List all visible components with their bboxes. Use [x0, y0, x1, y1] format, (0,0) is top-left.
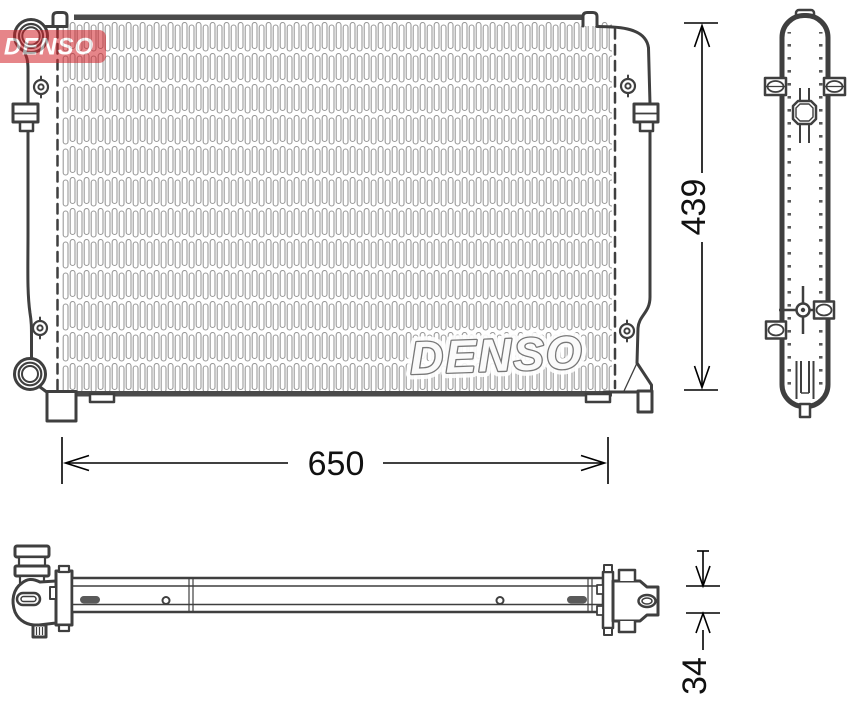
side-knob-left-mid — [766, 322, 786, 339]
side-tick-strip-left — [788, 32, 792, 388]
side-bottom-tab — [800, 404, 810, 417]
core-watermark-text: DENSO — [409, 326, 584, 384]
right-plate-lug-top — [597, 585, 603, 594]
left-mount-pin — [53, 13, 67, 27]
core-top-header — [74, 15, 594, 21]
pipe-flange — [15, 566, 49, 576]
right-mount-pin — [583, 13, 597, 27]
side-tick-strip-right — [819, 32, 823, 388]
height-value: 439 — [675, 179, 713, 236]
fastener-left-lower — [33, 318, 47, 339]
dimension-height: 439 — [675, 23, 718, 390]
fastener-left-upper — [34, 77, 48, 98]
drawing-svg: DENSO DENSO DENSO 439 650 — [0, 0, 850, 701]
right-foot — [638, 391, 652, 412]
left-mount-bracket — [13, 104, 38, 131]
bottom-notch-right — [586, 394, 610, 402]
end-plate-tab-top — [59, 566, 69, 572]
end-plate — [56, 571, 72, 625]
right-ear-bottom — [619, 621, 635, 632]
right-tank-edge — [637, 48, 652, 391]
bar-hole-left — [163, 597, 170, 604]
right-head-hole — [639, 595, 656, 607]
radiator-technical-drawing: DENSO DENSO DENSO 439 650 — [0, 0, 850, 701]
denso-logo-text: DENSO — [4, 34, 94, 61]
side-knob-left-top — [765, 78, 786, 95]
right-plate-tab-bottom — [604, 628, 612, 635]
fastener-right-lower — [620, 321, 634, 342]
outlet-port-bottom — [15, 359, 46, 390]
bottom-bar — [72, 578, 611, 612]
bottom-view — [13, 546, 658, 637]
bottom-notch-left — [90, 394, 114, 402]
end-plate-tab-bottom — [59, 625, 69, 631]
fastener-right-upper — [621, 76, 635, 97]
core-denso-watermark: DENSO DENSO — [409, 326, 584, 384]
end-plate-lug — [50, 587, 56, 599]
right-tank-inner-line — [624, 363, 637, 391]
pipe-cap — [15, 546, 49, 557]
left-foot — [47, 392, 76, 422]
dimension-thickness: 34 — [676, 551, 720, 695]
side-view — [765, 10, 845, 417]
left-tank-edge — [23, 49, 32, 359]
width-value: 650 — [308, 445, 365, 483]
denso-logo-watermark: DENSO — [0, 30, 106, 63]
right-plate-tab-top — [604, 565, 612, 572]
right-ear-top — [619, 570, 635, 581]
bar-slot-right — [567, 596, 587, 604]
core-bottom-header — [70, 391, 612, 397]
front-view: DENSO DENSO — [13, 13, 658, 422]
bar-outline — [72, 578, 611, 612]
right-mount-bracket — [634, 104, 658, 131]
side-knob-right-mid — [814, 302, 834, 319]
bar-slot-left — [80, 596, 100, 604]
bottom-left-fitting — [13, 546, 72, 637]
bottom-right-fitting — [597, 565, 658, 635]
thickness-value: 34 — [676, 657, 714, 695]
side-knob-right-top — [824, 78, 845, 95]
dimension-width: 650 — [62, 437, 608, 484]
bar-hole-right — [497, 597, 504, 604]
right-plate-lug-bottom — [597, 606, 603, 615]
